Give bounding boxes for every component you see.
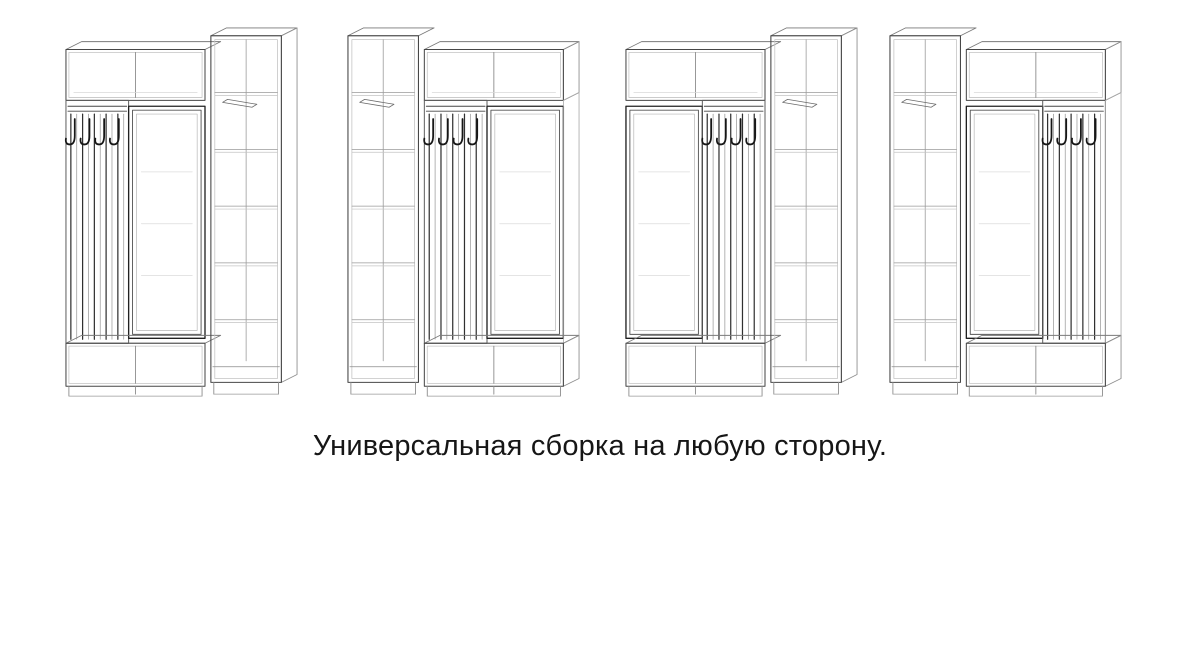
wardrobe-drawing-4 — [886, 24, 1125, 400]
caption: Универсальная сборка на любую сторону. — [0, 429, 1200, 463]
wardrobe-drawing-1 — [62, 24, 301, 400]
drawings-row — [0, 0, 1200, 420]
wardrobe-drawing-2 — [344, 24, 583, 400]
page: Универсальная сборка на любую сторону. — [0, 0, 1200, 667]
wardrobe-drawing-3 — [622, 24, 861, 400]
